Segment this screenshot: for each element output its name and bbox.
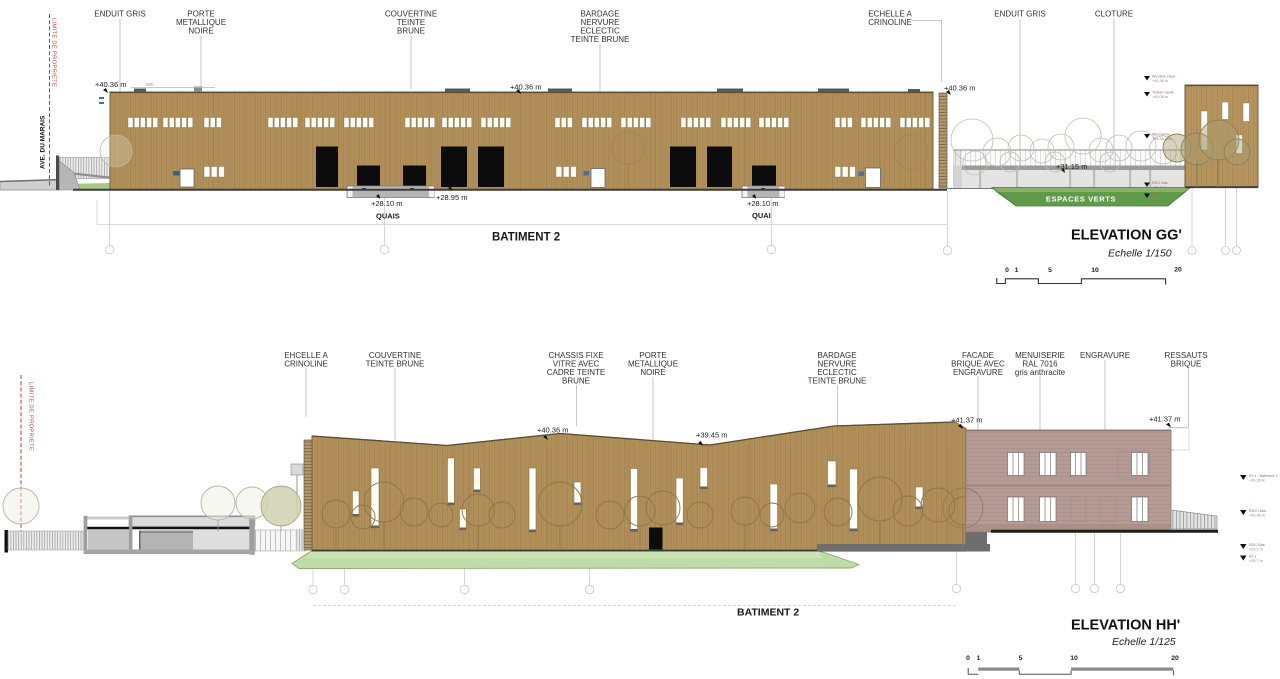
svg-text:BRIQUE: BRIQUE xyxy=(1171,360,1202,369)
svg-text:BATIMENT 2: BATIMENT 2 xyxy=(492,232,560,244)
svg-text:10: 10 xyxy=(1070,655,1078,662)
svg-text:Mezzanine: Mezzanine xyxy=(1152,133,1170,137)
svg-text:BATIMENT 2: BATIMENT 2 xyxy=(737,607,799,619)
svg-text:LIMITE DE PROPRIETE: LIMITE DE PROPRIETE xyxy=(28,382,34,451)
svg-text:+35.36 gsm: +35.36 gsm xyxy=(1152,137,1172,141)
svg-text:CRINOLINE: CRINOLINE xyxy=(284,360,328,369)
svg-text:gris anthracite: gris anthracite xyxy=(1015,368,1066,377)
svg-text:+32.95 m: +32.95 m xyxy=(1249,514,1265,518)
svg-text:+28.1 m: +28.1 m xyxy=(1152,186,1166,190)
svg-text:0: 0 xyxy=(1005,267,1009,274)
svg-text:RDC Bas: RDC Bas xyxy=(1249,543,1265,547)
svg-text:+31.15 m: +31.15 m xyxy=(1056,162,1087,171)
svg-text:Acrotere haut: Acrotere haut xyxy=(1152,75,1176,79)
svg-text:+29.2 m: +29.2 m xyxy=(1249,548,1263,552)
svg-text:NOIRE: NOIRE xyxy=(188,27,213,36)
svg-text:+40.36 m: +40.36 m xyxy=(95,80,126,89)
svg-text:+25.1 m: +25.1 m xyxy=(1152,197,1166,201)
svg-text:NOIRE: NOIRE xyxy=(640,368,665,377)
svg-text:BRUNE: BRUNE xyxy=(562,377,590,386)
svg-text:RDC Bas: RDC Bas xyxy=(1152,181,1168,185)
svg-text:+28.10 m: +28.10 m xyxy=(747,199,778,208)
svg-text:QUAI: QUAI xyxy=(752,211,771,220)
svg-text:QUAIS: QUAIS xyxy=(376,212,400,221)
svg-text:BRUNE: BRUNE xyxy=(397,27,425,36)
svg-text:1: 1 xyxy=(977,655,981,662)
svg-text:ESPACES VERTS: ESPACES VERTS xyxy=(1046,195,1116,204)
svg-text:Echelle 1/125: Echelle 1/125 xyxy=(1112,636,1176,648)
svg-text:+41.37 m: +41.37 m xyxy=(1149,415,1180,424)
svg-text:+40.36 m: +40.36 m xyxy=(510,83,541,92)
svg-text:Toiture haute: Toiture haute xyxy=(1152,91,1174,95)
svg-text:+41.37 m: +41.37 m xyxy=(951,416,982,425)
svg-text:+39.45 m: +39.45 m xyxy=(696,431,727,440)
svg-text:+40.36 m: +40.36 m xyxy=(537,426,568,435)
svg-text:RDC Haut: RDC Haut xyxy=(1249,509,1267,513)
svg-text:ENDUIT GRIS: ENDUIT GRIS xyxy=(94,10,145,19)
svg-text:10: 10 xyxy=(1091,267,1099,274)
svg-text:ELEVATION HH': ELEVATION HH' xyxy=(1071,618,1180,634)
svg-text:ENGRAVURE: ENGRAVURE xyxy=(1080,351,1130,360)
svg-text:+40.36 m: +40.36 m xyxy=(1152,79,1168,83)
svg-text:ENDUIT GRIS: ENDUIT GRIS xyxy=(994,10,1045,19)
svg-text:CLOTURE: CLOTURE xyxy=(1095,10,1133,19)
svg-text:R+1: R+1 xyxy=(1249,555,1256,559)
svg-text:Echelle 1/150: Echelle 1/150 xyxy=(1108,248,1172,260)
svg-text:ENGRAVURE: ENGRAVURE xyxy=(953,368,1003,377)
svg-text:0: 0 xyxy=(966,655,970,662)
svg-text:R+1 - Batiment 2: R+1 - Batiment 2 xyxy=(1249,474,1278,478)
svg-text:+40.08 m: +40.08 m xyxy=(1152,95,1168,99)
svg-text:5: 5 xyxy=(1019,655,1023,662)
svg-text:20: 20 xyxy=(1171,655,1179,662)
svg-text:TEINTE BRUNE: TEINTE BRUNE xyxy=(366,360,425,369)
svg-text:R-1: R-1 xyxy=(1152,192,1158,196)
svg-text:20: 20 xyxy=(1174,267,1182,274)
svg-text:LIMITE DE PROPRIETE: LIMITE DE PROPRIETE xyxy=(51,18,57,87)
svg-text:TEINTE BRUNE: TEINTE BRUNE xyxy=(808,377,867,386)
svg-text:+28.95 m: +28.95 m xyxy=(436,193,467,202)
svg-text:+28.10 m: +28.10 m xyxy=(371,199,402,208)
svg-text:AVE. DU MARAIS: AVE. DU MARAIS xyxy=(40,115,47,169)
svg-text:5: 5 xyxy=(1048,267,1052,274)
svg-text:+39.26 N: +39.26 N xyxy=(1249,479,1265,483)
svg-text:TEINTE BRUNE: TEINTE BRUNE xyxy=(571,35,630,44)
svg-text:1: 1 xyxy=(1015,267,1019,274)
svg-text:CRINOLINE: CRINOLINE xyxy=(868,18,912,27)
svg-text:+25.7 m: +25.7 m xyxy=(1249,559,1263,563)
svg-text:ELEVATION GG': ELEVATION GG' xyxy=(1071,228,1182,244)
svg-text:800: 800 xyxy=(146,82,154,87)
